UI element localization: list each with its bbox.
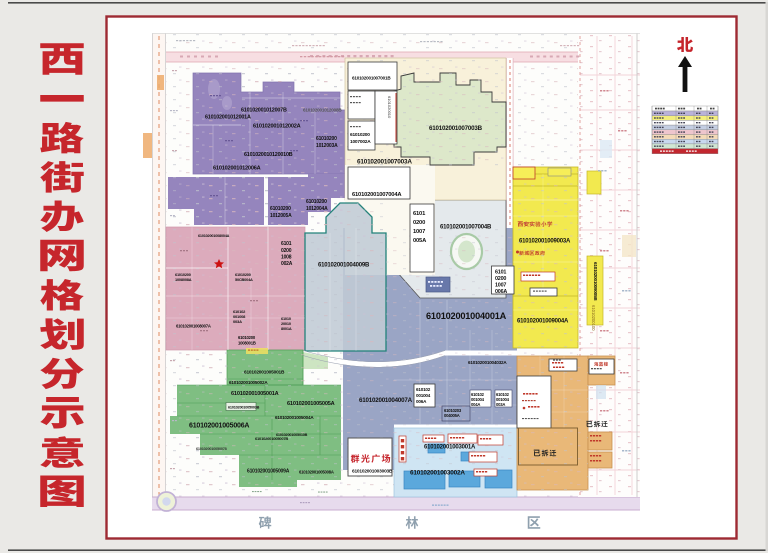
- svg-text:610102001007003A: 610102001007003A: [357, 159, 412, 166]
- svg-text:1008: 1008: [281, 255, 292, 261]
- svg-text:1012004A: 1012004A: [306, 206, 328, 212]
- svg-text:610102001003003B: 610102001003003B: [352, 469, 393, 475]
- svg-text:610102001005009A: 610102001005009A: [247, 469, 290, 475]
- svg-text:002A: 002A: [281, 261, 293, 267]
- svg-text:610102001007004B: 610102001007004B: [440, 225, 492, 231]
- svg-text:006A: 006A: [416, 399, 427, 404]
- svg-text:1007002A: 1007002A: [350, 139, 371, 145]
- svg-text:610102: 610102: [416, 387, 431, 392]
- svg-text:610102001005001A: 610102001005001A: [231, 391, 279, 397]
- svg-text:61010200: 61010200: [350, 132, 370, 138]
- svg-text:005A: 005A: [413, 238, 427, 244]
- svg-text:610102001005005A: 610102001005005A: [287, 401, 335, 407]
- svg-text:1008008A: 1008008A: [175, 277, 192, 282]
- svg-text:004A: 004A: [471, 402, 480, 407]
- svg-text:610102001005001B: 610102001005001B: [244, 370, 285, 376]
- svg-text:1012005A: 1012005A: [270, 213, 292, 219]
- svg-text:610102001004009B: 610102001004009B: [318, 263, 370, 269]
- svg-text:610102001012001A: 610102001012001A: [205, 115, 251, 121]
- svg-text:6101: 6101: [281, 241, 292, 247]
- svg-text:610102001005004A: 610102001005004A: [275, 415, 314, 420]
- svg-text:6101020010120010B: 6101020010120010B: [244, 152, 293, 158]
- svg-text:61010200: 61010200: [316, 136, 337, 142]
- svg-text:610102001005010B: 610102001005010B: [276, 433, 308, 437]
- svg-text:610102001005003B: 610102001005003B: [228, 406, 260, 410]
- svg-text:1012003A: 1012003A: [316, 143, 338, 149]
- svg-text:610102001008007A: 610102001008007A: [176, 324, 211, 329]
- svg-text:61010200: 61010200: [306, 199, 327, 205]
- svg-text:610102001005008A: 610102001005008A: [299, 470, 334, 475]
- svg-text:0200: 0200: [281, 248, 292, 254]
- svg-text:610102001007003B: 610102001007003B: [429, 125, 483, 132]
- svg-text:1008001B: 1008001B: [238, 341, 256, 346]
- svg-text:610102001008004A: 610102001008004A: [198, 234, 230, 238]
- svg-text:003A: 003A: [496, 402, 505, 407]
- svg-text:610102001003002A: 610102001003002A: [410, 470, 465, 477]
- svg-text:001004: 001004: [416, 393, 431, 398]
- svg-text:610102001012002A: 610102001012002A: [253, 124, 301, 130]
- svg-text:003A: 003A: [233, 319, 242, 324]
- svg-text:0200: 0200: [413, 220, 425, 226]
- svg-text:610102001005006A: 610102001005006A: [189, 423, 249, 430]
- svg-text:610102001005002A: 610102001005002A: [229, 380, 268, 385]
- svg-text:6101: 6101: [413, 211, 426, 217]
- svg-text:1007: 1007: [495, 283, 506, 289]
- svg-text:61010200: 61010200: [270, 206, 291, 212]
- svg-text:610102001004001A: 610102001004001A: [426, 311, 507, 321]
- svg-text:610102001009004A: 610102001009004A: [517, 319, 569, 325]
- svg-text:0200: 0200: [495, 276, 506, 282]
- svg-text:610102001009003A: 610102001009003A: [519, 239, 571, 245]
- svg-text:610102001007004A: 610102001007004A: [352, 192, 402, 198]
- svg-text:610102001009005B: 610102001009005B: [593, 262, 598, 301]
- svg-text:6101020010050078: 6101020010050078: [196, 447, 227, 451]
- svg-text:610102001007001B: 610102001007001B: [352, 76, 391, 81]
- svg-text:610102001004032A: 610102001004032A: [468, 360, 507, 365]
- svg-text:610102001003001A: 610102001003001A: [424, 445, 476, 451]
- svg-text:6101: 6101: [495, 270, 506, 276]
- svg-text:610102001012006A: 610102001012006A: [213, 166, 261, 172]
- svg-text:50CB004A: 50CB004A: [235, 277, 253, 282]
- svg-text:004005A: 004005A: [444, 413, 460, 418]
- svg-text:6101020010: 6101020010: [387, 96, 392, 119]
- svg-text:8001A: 8001A: [281, 326, 292, 331]
- svg-text:610102001012007B: 610102001012007B: [241, 108, 287, 114]
- svg-text:1007: 1007: [413, 229, 425, 235]
- svg-text:610102001012008B: 610102001012008B: [303, 108, 342, 113]
- svg-text:610102001004007A: 610102001004007A: [359, 397, 413, 404]
- svg-text:61010200: 61010200: [238, 335, 256, 340]
- svg-text:61010200100: 61010200100: [591, 305, 596, 331]
- svg-text:006A: 006A: [495, 289, 507, 295]
